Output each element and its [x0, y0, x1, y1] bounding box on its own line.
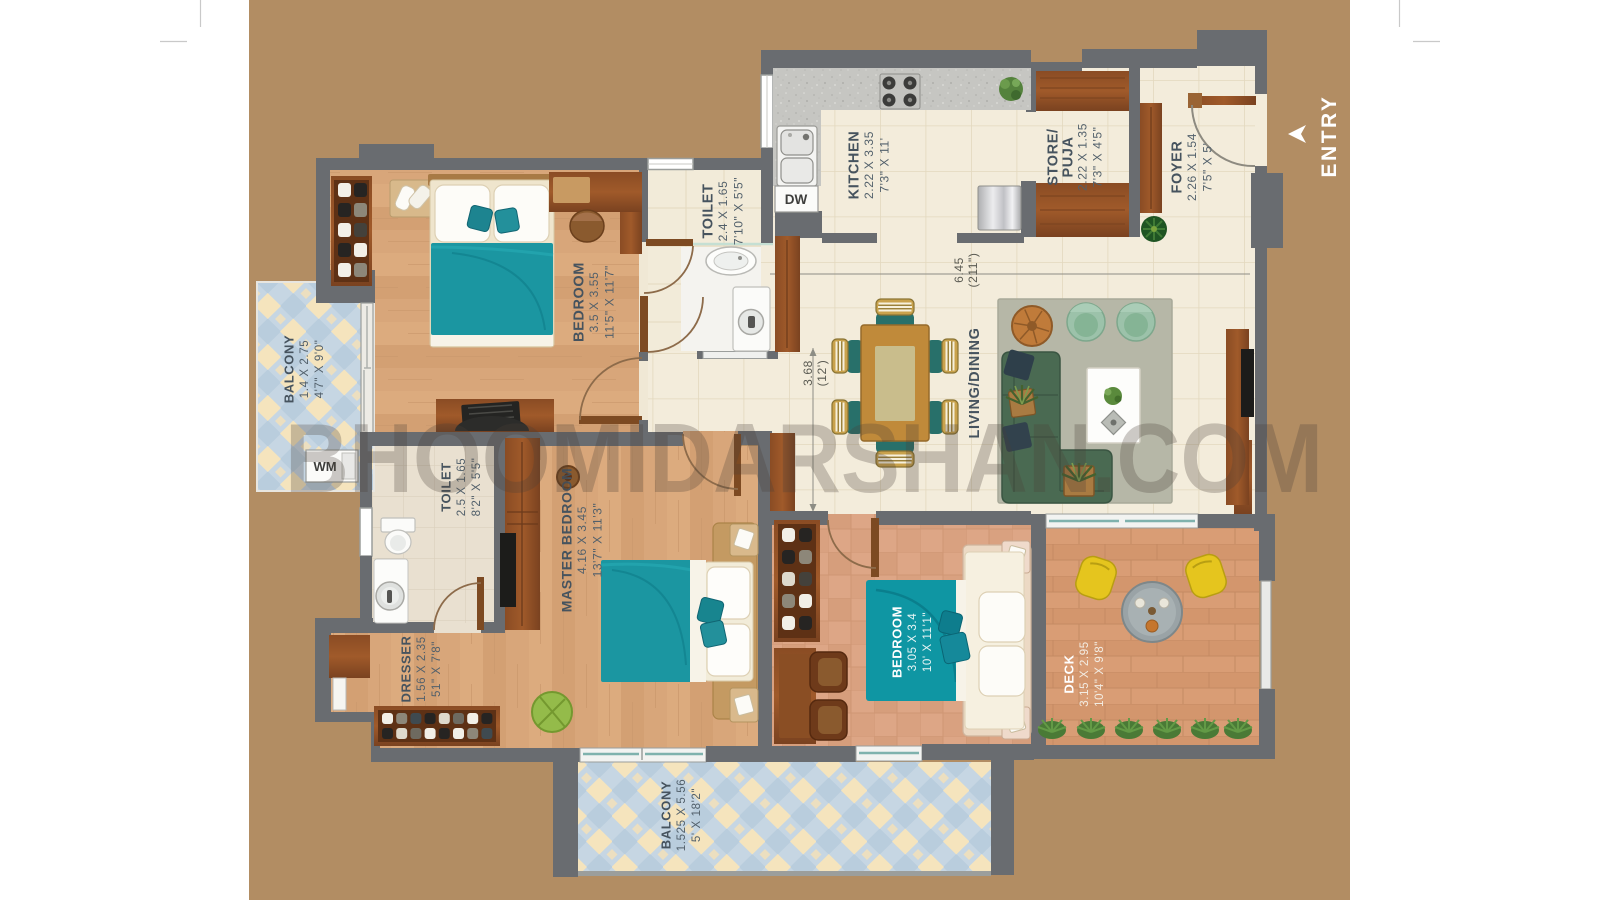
svg-text:TOILET: TOILET — [701, 184, 717, 239]
svg-text:(211"): (211") — [966, 253, 980, 288]
svg-text:KITCHEN: KITCHEN — [847, 131, 863, 200]
svg-text:BHOOMIDARSHAN.COM: BHOOMIDARSHAN.COM — [285, 403, 1323, 513]
svg-text:51" X 7'8": 51" X 7'8" — [431, 641, 443, 697]
svg-text:2.26 X 1.54: 2.26 X 1.54 — [1185, 133, 1199, 201]
svg-text:DECK: DECK — [1062, 654, 1077, 693]
svg-text:1.525 X 5.56: 1.525 X 5.56 — [676, 779, 688, 851]
svg-text:3.68: 3.68 — [801, 360, 815, 386]
svg-text:10' X 11'1": 10' X 11'1" — [922, 612, 934, 672]
svg-text:7'10" X 5'5": 7'10" X 5'5" — [732, 177, 746, 245]
svg-text:2.22 X 3.35: 2.22 X 3.35 — [862, 131, 876, 199]
svg-text:3.15 X 2.95: 3.15 X 2.95 — [1079, 641, 1091, 706]
svg-text:7'5" X 5': 7'5" X 5' — [1201, 143, 1215, 192]
svg-text:DRESSER: DRESSER — [399, 635, 414, 702]
svg-text:BEDROOM: BEDROOM — [890, 606, 905, 678]
svg-text:ENTRY: ENTRY — [1318, 95, 1341, 178]
svg-text:7'3" X 4'5": 7'3" X 4'5" — [1091, 126, 1105, 187]
svg-text:3.5 X 3.55: 3.5 X 3.55 — [587, 272, 601, 333]
svg-text:PUJA: PUJA — [1061, 136, 1077, 177]
svg-text:11'5" X 11'7": 11'5" X 11'7" — [603, 265, 617, 339]
svg-text:4.16 X 3.45: 4.16 X 3.45 — [575, 506, 589, 574]
svg-text:BALCONY: BALCONY — [659, 781, 674, 849]
svg-text:7'3" X 11': 7'3" X 11' — [878, 137, 892, 192]
svg-text:2.22 X 1.35: 2.22 X 1.35 — [1076, 123, 1090, 191]
svg-text:2.4 X 1.65: 2.4 X 1.65 — [716, 181, 730, 242]
svg-text:5' X 18'2": 5' X 18'2" — [691, 788, 703, 842]
svg-text:13'7" X 11'3": 13'7" X 11'3" — [591, 503, 605, 578]
svg-text:BALCONY: BALCONY — [282, 335, 297, 403]
svg-text:STORE/: STORE/ — [1046, 128, 1062, 185]
svg-text:(12'): (12') — [815, 360, 829, 387]
svg-text:1.4 X 2.75: 1.4 X 2.75 — [299, 340, 311, 398]
svg-text:1.56 X 2.35: 1.56 X 2.35 — [416, 636, 428, 701]
svg-text:10'4" X 9'8": 10'4" X 9'8" — [1094, 641, 1106, 707]
svg-text:BEDROOM: BEDROOM — [572, 262, 588, 342]
svg-text:DW: DW — [785, 192, 808, 207]
svg-text:3.05 X 3.4: 3.05 X 3.4 — [907, 613, 919, 671]
svg-text:6.45: 6.45 — [952, 257, 966, 283]
svg-text:4'7" X 9'0": 4'7" X 9'0" — [314, 340, 326, 399]
svg-text:FOYER: FOYER — [1170, 141, 1186, 194]
